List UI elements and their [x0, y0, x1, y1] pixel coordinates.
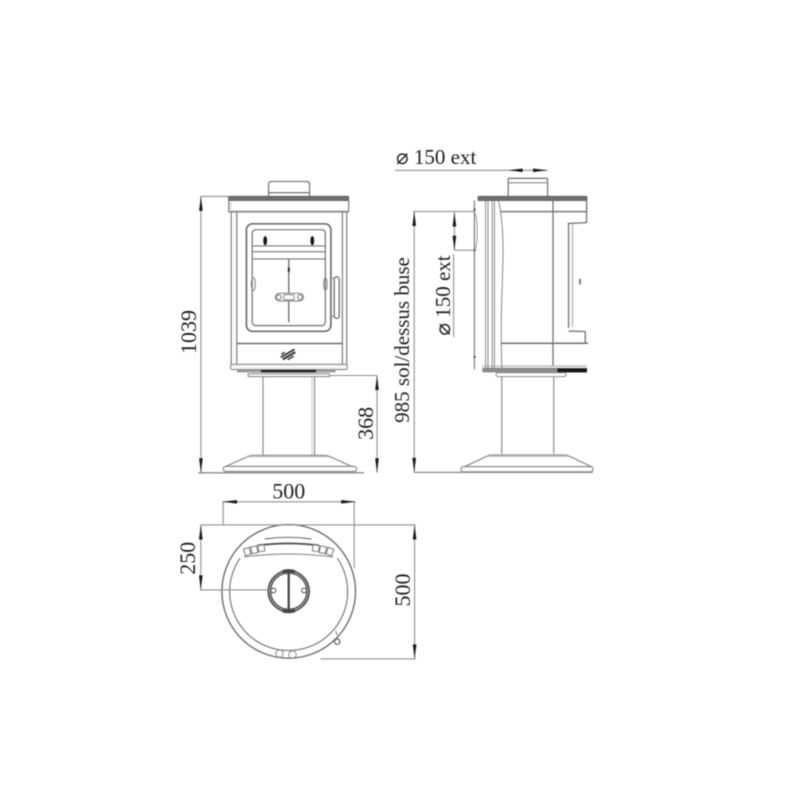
svg-text:368: 368 [353, 407, 378, 440]
svg-text:1039: 1039 [176, 310, 201, 354]
svg-text:⌀ 150 ext: ⌀ 150 ext [431, 255, 455, 335]
svg-text:500: 500 [272, 478, 305, 503]
svg-text:⌀ 150 ext: ⌀ 150 ext [396, 145, 476, 169]
svg-text:250: 250 [175, 542, 200, 575]
svg-text:500: 500 [390, 574, 415, 607]
svg-text:985 sol/dessus buse: 985 sol/dessus buse [390, 257, 414, 423]
